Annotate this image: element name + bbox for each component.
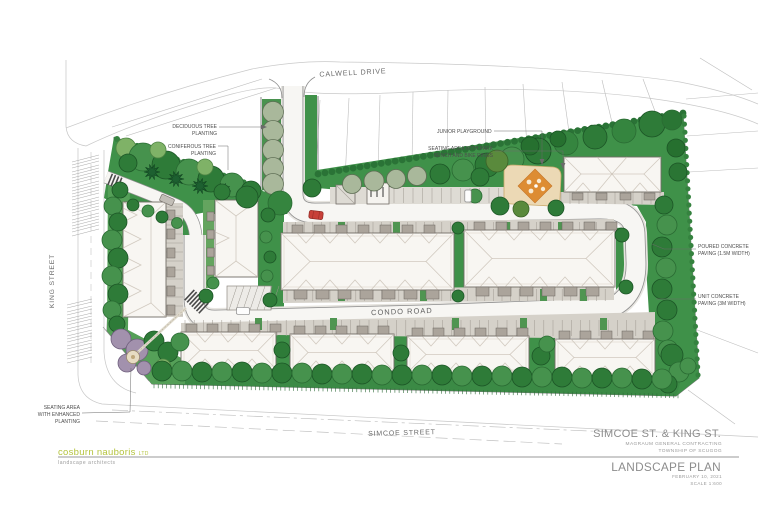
svg-text:BENCH AND BIKE RINGS: BENCH AND BIKE RINGS [434, 153, 494, 159]
svg-text:SEATING AREA WITH PARK: SEATING AREA WITH PARK [428, 146, 493, 152]
svg-text:landscape architects: landscape architects [58, 460, 116, 466]
svg-text:DECIDUOUS TREE: DECIDUOUS TREE [172, 124, 217, 130]
svg-text:UNIT CONCRETE: UNIT CONCRETE [698, 294, 740, 300]
svg-text:PLANTING: PLANTING [191, 151, 216, 157]
svg-text:WITH ENHANCED: WITH ENHANCED [38, 412, 81, 418]
svg-text:cosburn nauboris LTD: cosburn nauboris LTD [58, 447, 149, 458]
svg-text:PLANTING: PLANTING [192, 131, 217, 137]
svg-text:POURED CONCRETE: POURED CONCRETE [698, 244, 750, 250]
svg-text:SEATING AREA: SEATING AREA [44, 405, 81, 411]
svg-text:FEBRUARY 10, 2021: FEBRUARY 10, 2021 [672, 474, 722, 479]
svg-text:MAGRAUM GENERAL CONTRACTING: MAGRAUM GENERAL CONTRACTING [626, 441, 722, 447]
svg-text:SIMCOE ST. & KING ST.: SIMCOE ST. & KING ST. [593, 428, 721, 440]
svg-text:SCALE 1:600: SCALE 1:600 [690, 481, 722, 486]
svg-text:PAVING (1.5M WIDTH): PAVING (1.5M WIDTH) [698, 251, 750, 257]
svg-text:TOWNSHIP OF SCUGOG: TOWNSHIP OF SCUGOG [658, 448, 722, 454]
svg-text:PAVING (3M WIDTH): PAVING (3M WIDTH) [698, 301, 746, 307]
svg-text:CONIFEROUS TREE: CONIFEROUS TREE [168, 144, 217, 150]
svg-text:LANDSCAPE PLAN: LANDSCAPE PLAN [611, 460, 721, 474]
svg-text:KING STREET: KING STREET [49, 254, 56, 308]
svg-text:PLANTING: PLANTING [55, 419, 80, 425]
svg-text:JUNIOR PLAYGROUND: JUNIOR PLAYGROUND [437, 129, 492, 135]
